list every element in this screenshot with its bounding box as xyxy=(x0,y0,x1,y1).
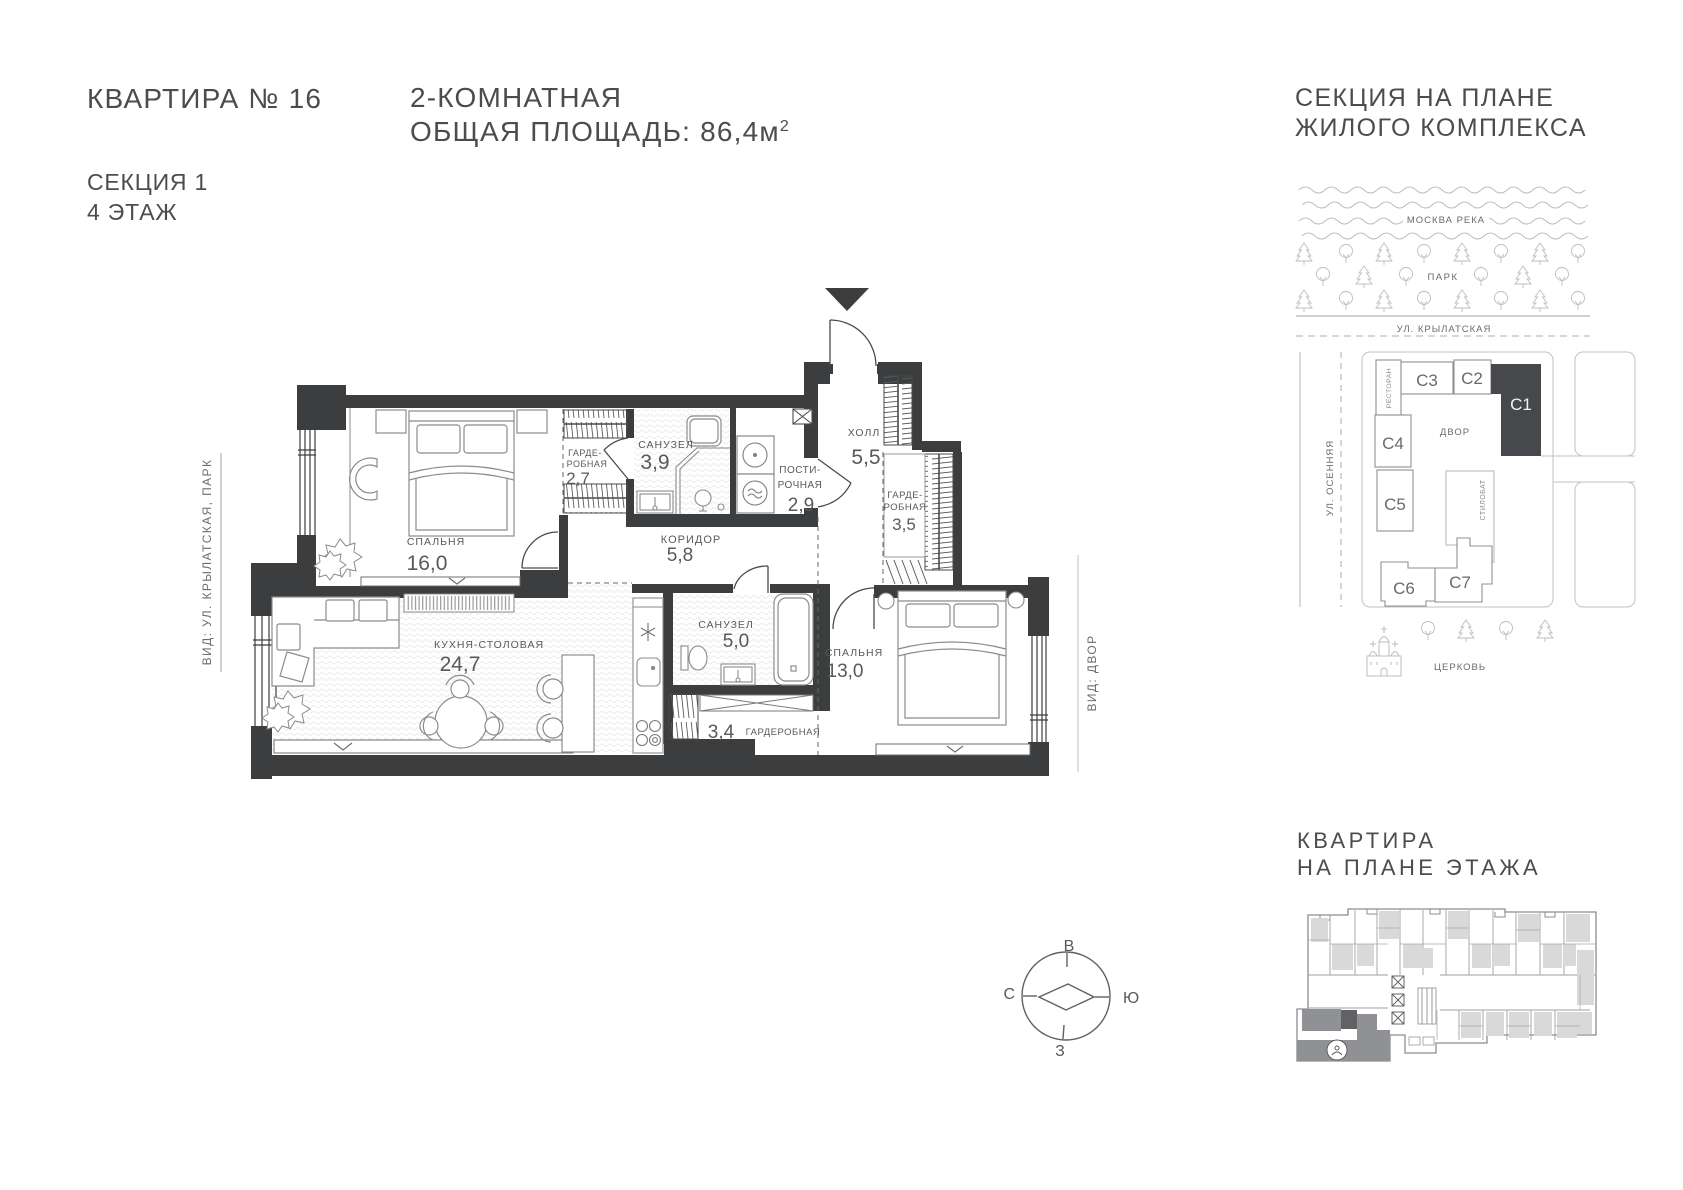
svg-text:ЦЕРКОВЬ: ЦЕРКОВЬ xyxy=(1434,662,1486,673)
svg-text:КУХНЯ-СТОЛОВАЯ: КУХНЯ-СТОЛОВАЯ xyxy=(434,639,544,651)
svg-text:ПАРК: ПАРК xyxy=(1427,272,1458,283)
svg-text:С4: С4 xyxy=(1382,434,1404,453)
svg-text:3,5: 3,5 xyxy=(892,515,916,534)
svg-text:В: В xyxy=(1064,938,1075,955)
svg-text:УЛ. ОСЕННЯЯ: УЛ. ОСЕННЯЯ xyxy=(1325,440,1336,516)
svg-text:ОБЩАЯ ПЛОЩАДЬ: 86,4м2: ОБЩАЯ ПЛОЩАДЬ: 86,4м2 xyxy=(410,116,790,147)
svg-text:ГАРДЕ-: ГАРДЕ- xyxy=(887,490,922,501)
svg-text:2,9: 2,9 xyxy=(788,495,814,516)
svg-text:5,0: 5,0 xyxy=(723,631,749,652)
svg-text:С5: С5 xyxy=(1384,495,1406,514)
svg-text:СПАЛЬНЯ: СПАЛЬНЯ xyxy=(825,647,883,659)
svg-text:ХОЛЛ: ХОЛЛ xyxy=(848,427,881,439)
svg-text:КВАРТИРА № 16: КВАРТИРА № 16 xyxy=(87,83,322,114)
svg-text:КВАРТИРА: КВАРТИРА xyxy=(1297,828,1436,853)
svg-text:СЕКЦИЯ 1: СЕКЦИЯ 1 xyxy=(87,169,208,195)
svg-text:Ю: Ю xyxy=(1123,990,1139,1007)
svg-text:РОЧНАЯ: РОЧНАЯ xyxy=(778,480,823,491)
svg-text:З: З xyxy=(1055,1043,1065,1060)
svg-text:13,0: 13,0 xyxy=(827,661,864,682)
svg-text:5,5: 5,5 xyxy=(851,446,880,469)
svg-text:РОБНАЯ: РОБНАЯ xyxy=(567,459,608,469)
svg-text:3,9: 3,9 xyxy=(640,451,669,474)
svg-text:ВИД: ДВОР: ВИД: ДВОР xyxy=(1085,634,1099,711)
svg-text:16,0: 16,0 xyxy=(407,552,448,575)
svg-text:3,4: 3,4 xyxy=(708,722,735,743)
svg-text:УЛ. КРЫЛАТСКАЯ: УЛ. КРЫЛАТСКАЯ xyxy=(1397,324,1492,335)
svg-text:2-КОМНАТНАЯ: 2-КОМНАТНАЯ xyxy=(410,82,622,113)
svg-text:С: С xyxy=(1003,986,1015,1003)
svg-text:ВИД: УЛ. КРЫЛАТСКАЯ, ПАРК: ВИД: УЛ. КРЫЛАТСКАЯ, ПАРК xyxy=(200,459,214,666)
svg-text:САНУЗЕЛ: САНУЗЕЛ xyxy=(698,619,754,631)
svg-text:САНУЗЕЛ: САНУЗЕЛ xyxy=(638,439,694,451)
svg-text:НА ПЛАНЕ ЭТАЖА: НА ПЛАНЕ ЭТАЖА xyxy=(1297,855,1541,880)
svg-text:СЕКЦИЯ НА ПЛАНЕ: СЕКЦИЯ НА ПЛАНЕ xyxy=(1295,84,1554,112)
svg-text:24,7: 24,7 xyxy=(440,653,481,676)
svg-text:С3: С3 xyxy=(1416,371,1438,390)
svg-text:С1: С1 xyxy=(1510,395,1532,414)
svg-text:РОБНАЯ: РОБНАЯ xyxy=(884,502,927,513)
svg-text:2,7: 2,7 xyxy=(566,469,590,488)
svg-text:ДВОР: ДВОР xyxy=(1440,427,1470,438)
svg-text:СТИЛОБАТ: СТИЛОБАТ xyxy=(1480,479,1487,520)
svg-text:4 ЭТАЖ: 4 ЭТАЖ xyxy=(87,199,177,225)
svg-text:С6: С6 xyxy=(1393,579,1415,598)
svg-text:ЖИЛОГО КОМПЛЕКСА: ЖИЛОГО КОМПЛЕКСА xyxy=(1295,114,1587,142)
svg-text:ПОСТИ-: ПОСТИ- xyxy=(779,465,820,476)
svg-text:5,8: 5,8 xyxy=(667,545,693,566)
svg-text:С2: С2 xyxy=(1461,369,1483,388)
svg-text:ГАРДЕРОБНАЯ: ГАРДЕРОБНАЯ xyxy=(746,727,821,738)
svg-text:С7: С7 xyxy=(1449,573,1471,592)
svg-text:СПАЛЬНЯ: СПАЛЬНЯ xyxy=(407,536,465,548)
svg-text:РЕСТОРАН: РЕСТОРАН xyxy=(1386,368,1393,408)
svg-text:ГАРДЕ-: ГАРДЕ- xyxy=(568,448,602,458)
svg-text:МОСКВА РЕКА: МОСКВА РЕКА xyxy=(1407,215,1485,226)
